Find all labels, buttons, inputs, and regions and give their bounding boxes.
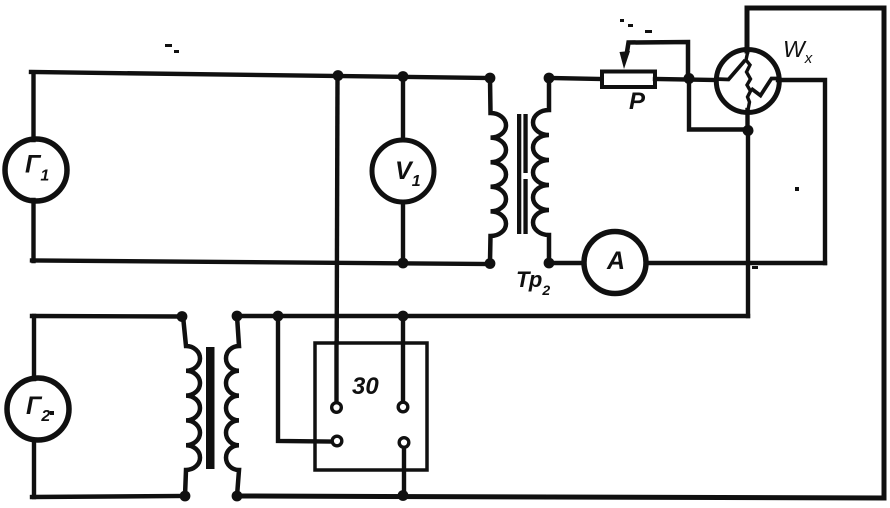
svg-text:Г2: Г2: [26, 392, 50, 425]
svg-text:Г1: Г1: [25, 151, 49, 185]
svg-text:A: A: [606, 247, 625, 275]
svg-text:30: 30: [352, 373, 379, 400]
svg-text:Wx: Wx: [783, 36, 813, 67]
svg-text:Р: Р: [629, 88, 646, 115]
svg-text:V1: V1: [395, 157, 421, 190]
svg-text:Тр2: Тр2: [516, 267, 550, 298]
